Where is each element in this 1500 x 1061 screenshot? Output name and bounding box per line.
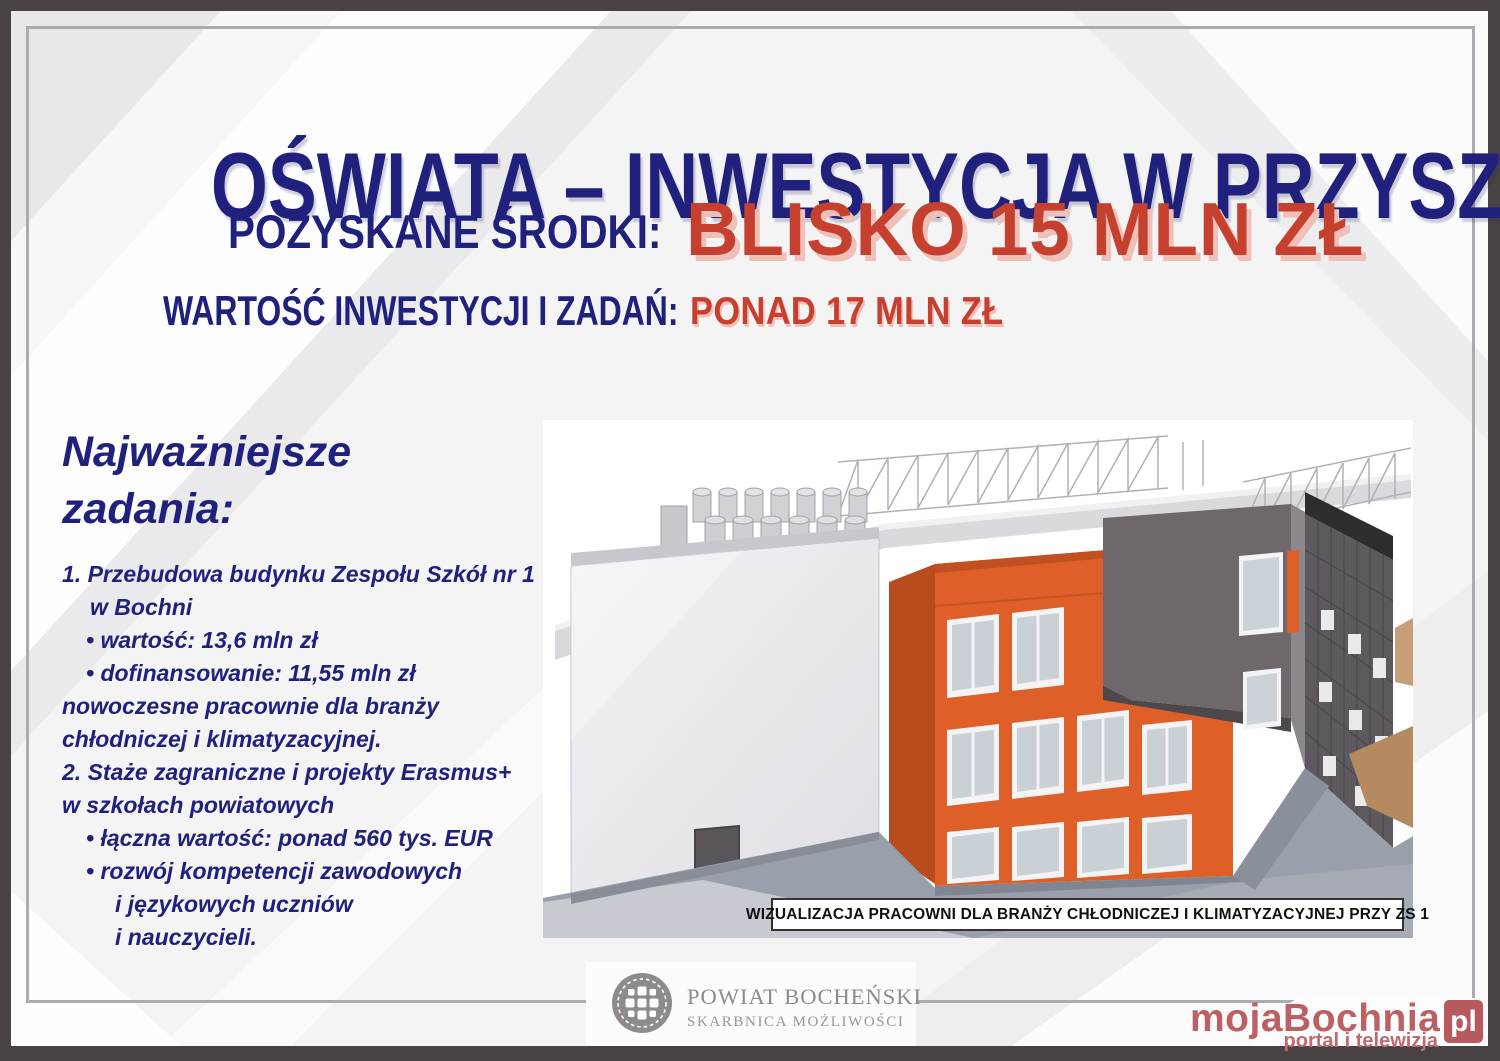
task-line: i językowych uczniów <box>62 888 540 921</box>
building-visualization-svg <box>543 420 1413 938</box>
task-line: w Bochni <box>62 591 540 624</box>
task-item-2: 2. Staże zagraniczne i projekty Erasmus+… <box>62 756 540 954</box>
task-item-1: 1. Przebudowa budynku Zespołu Szkół nr 1… <box>62 558 540 756</box>
poster: OŚWIATA – INWESTYCJA W PRZYSZŁOŚĆ POZYSK… <box>0 0 1500 1061</box>
media-logo-tagline: portal i telewizja <box>1190 1030 1438 1053</box>
funds-label: POZYSKANE ŚRODKI: <box>228 204 661 259</box>
task-line: • wartość: 13,6 mln zł <box>62 624 540 657</box>
task-line: • rozwój kompetencji zawodowych <box>62 855 540 888</box>
task-line: 1. Przebudowa budynku Zespołu Szkół nr 1 <box>62 558 540 591</box>
funds-value: BLISKO 15 MLN ZŁ <box>686 186 1364 272</box>
task-line: • łączna wartość: ponad 560 tys. EUR <box>62 822 540 855</box>
media-logo-suffix-box: pl <box>1444 1000 1483 1043</box>
task-line: nowoczesne pracownie dla branży <box>62 690 540 723</box>
building-visualization: WIZUALIZACJA PRACOWNI DLA BRANŻY CHŁODNI… <box>543 420 1413 938</box>
visualization-caption: WIZUALIZACJA PRACOWNI DLA BRANŻY CHŁODNI… <box>771 898 1404 931</box>
investment-value: PONAD 17 MLN ZŁ <box>690 290 1004 334</box>
powiat-emblem-icon <box>610 971 674 1035</box>
task-line: 2. Staże zagraniczne i projekty Erasmus+ <box>62 756 540 789</box>
powiat-logo: POWIAT BOCHEŃSKI SKARBNICA MOŻLIWOŚCI <box>610 971 922 1035</box>
tasks-heading: Najważniejsze zadania: <box>62 424 351 538</box>
powiat-name: POWIAT BOCHEŃSKI <box>687 984 922 1010</box>
investment-label: WARTOŚĆ INWESTYCJI I ZADAŃ: <box>163 287 678 335</box>
task-line: chłodniczej i klimatyzacyjnej. <box>62 723 540 756</box>
powiat-tagline: SKARBNICA MOŻLIWOŚCI <box>687 1014 922 1031</box>
tasks-heading-line-1: Najważniejsze <box>62 424 351 481</box>
task-line: • dofinansowanie: 11,55 mln zł <box>62 657 540 690</box>
media-logo-suffix: pl <box>1450 1007 1477 1037</box>
task-line: i nauczycieli. <box>62 921 540 954</box>
task-line: w szkołach powiatowych <box>62 789 540 822</box>
tasks-heading-line-2: zadania: <box>62 481 351 538</box>
powiat-text: POWIAT BOCHEŃSKI SKARBNICA MOŻLIWOŚCI <box>687 984 922 1035</box>
